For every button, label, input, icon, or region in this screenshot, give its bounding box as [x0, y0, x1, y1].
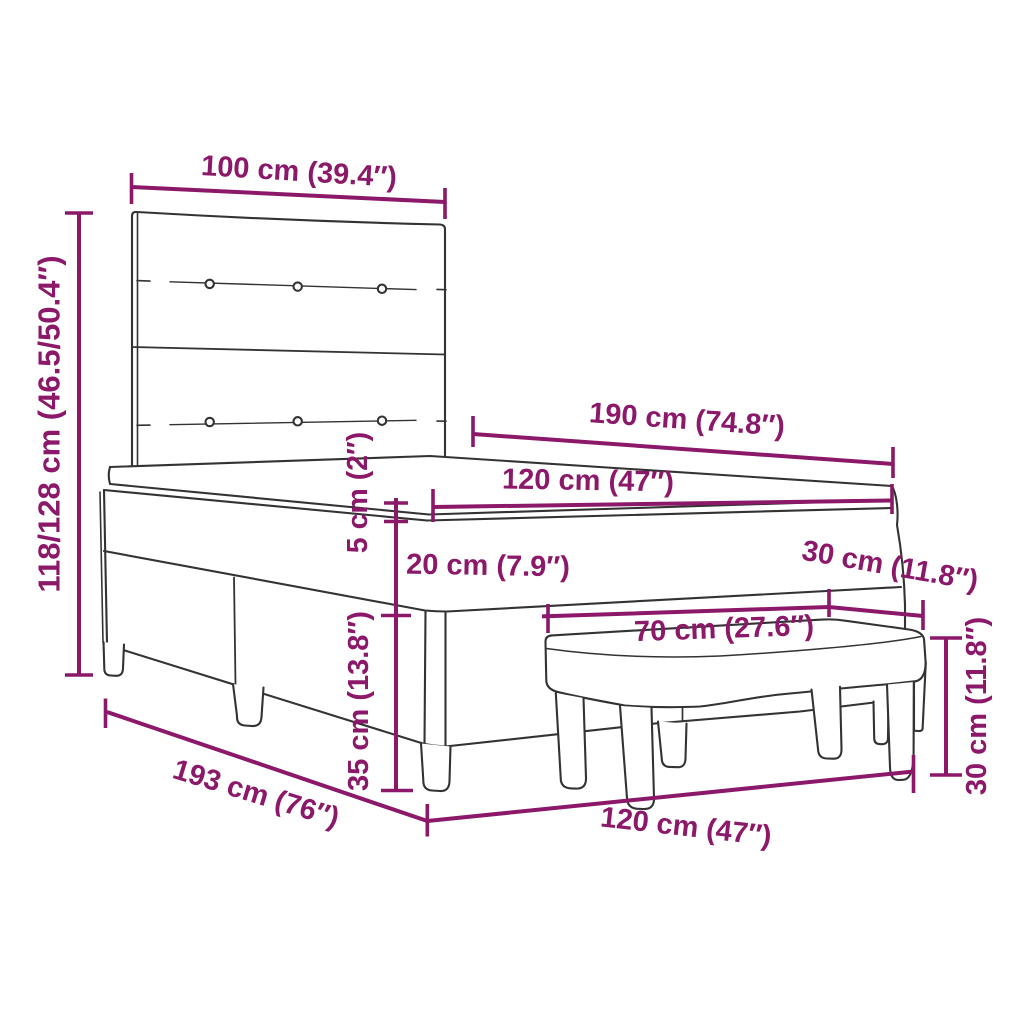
svg-text:35 cm (13.8″): 35 cm (13.8″) [343, 611, 375, 791]
svg-text:118/128 cm (46.5/50.4″): 118/128 cm (46.5/50.4″) [32, 255, 67, 592]
svg-text:70 cm (27.6″): 70 cm (27.6″) [634, 610, 815, 648]
svg-text:20 cm (7.9″): 20 cm (7.9″) [406, 549, 570, 584]
svg-text:120 cm (47″): 120 cm (47″) [502, 464, 674, 499]
svg-text:30 cm (11.8″): 30 cm (11.8″) [961, 617, 993, 795]
svg-text:5 cm (2″): 5 cm (2″) [342, 432, 374, 553]
